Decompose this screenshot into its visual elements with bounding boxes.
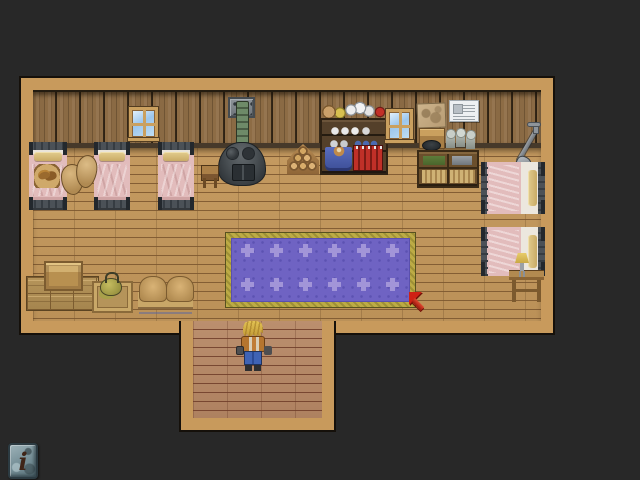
bed-h-pillowh bbox=[528, 170, 537, 206]
info-button[interactable]: i bbox=[8, 443, 38, 479]
info-icon: i bbox=[18, 447, 27, 476]
iron-stove[interactable] bbox=[218, 96, 266, 186]
carpet-motif bbox=[328, 244, 341, 257]
window-sill bbox=[384, 139, 415, 144]
carpet-motif bbox=[241, 278, 254, 291]
bread-basket[interactable] bbox=[34, 164, 60, 188]
bed-v-pillow bbox=[34, 152, 62, 161]
window-left bbox=[129, 107, 158, 140]
kitchen-hutch[interactable] bbox=[319, 99, 389, 175]
scene-objects bbox=[0, 0, 640, 480]
game-viewport[interactable]: i bbox=[0, 0, 640, 480]
workbench-wbody bbox=[417, 150, 479, 188]
carpet-motif bbox=[386, 278, 399, 291]
player-character[interactable] bbox=[236, 320, 270, 372]
carpet-motif bbox=[270, 278, 283, 291]
bed-left-3[interactable] bbox=[158, 142, 194, 210]
firewood-pile[interactable] bbox=[287, 144, 319, 174]
carpet-motif bbox=[270, 244, 283, 257]
grain-sacks[interactable] bbox=[61, 155, 97, 195]
nightstand-lamp bbox=[513, 253, 531, 273]
carpet-motif bbox=[386, 244, 399, 257]
stool[interactable] bbox=[201, 165, 219, 188]
player-pants bbox=[244, 351, 262, 365]
carpet-motif bbox=[328, 278, 341, 291]
carpet-motif bbox=[299, 278, 312, 291]
wall-map[interactable] bbox=[417, 103, 447, 129]
nightstand-lamp[interactable] bbox=[509, 253, 544, 303]
window-right bbox=[386, 109, 413, 142]
crates-cratetop bbox=[44, 261, 83, 291]
shovel-grip bbox=[527, 122, 541, 127]
player-vest bbox=[241, 336, 265, 352]
carpet-motif bbox=[241, 244, 254, 257]
hutch-topitems bbox=[319, 99, 389, 119]
carpet-motif bbox=[357, 278, 370, 291]
hutch-hbody bbox=[320, 118, 388, 175]
teapot-crate[interactable] bbox=[92, 272, 129, 309]
carpet-motif bbox=[357, 244, 370, 257]
bed-right-1[interactable] bbox=[481, 162, 545, 214]
carpet-motif bbox=[299, 244, 312, 257]
workbench[interactable] bbox=[417, 126, 479, 188]
move-target-cursor bbox=[409, 292, 433, 316]
bed-left-2[interactable] bbox=[94, 142, 130, 210]
nightstand-ntable bbox=[509, 270, 544, 303]
crate-stack[interactable] bbox=[26, 261, 97, 309]
wicker-sofa[interactable] bbox=[138, 276, 193, 312]
bed-v-pillow bbox=[163, 152, 189, 161]
teapot-crate-teapot bbox=[99, 272, 122, 295]
stove-body bbox=[218, 142, 266, 186]
workbench-wtop bbox=[417, 126, 479, 152]
wall-notice[interactable] bbox=[449, 100, 479, 122]
purple-carpet[interactable] bbox=[226, 233, 415, 307]
bed-v-pillow bbox=[99, 152, 125, 161]
window-sill bbox=[127, 137, 160, 142]
